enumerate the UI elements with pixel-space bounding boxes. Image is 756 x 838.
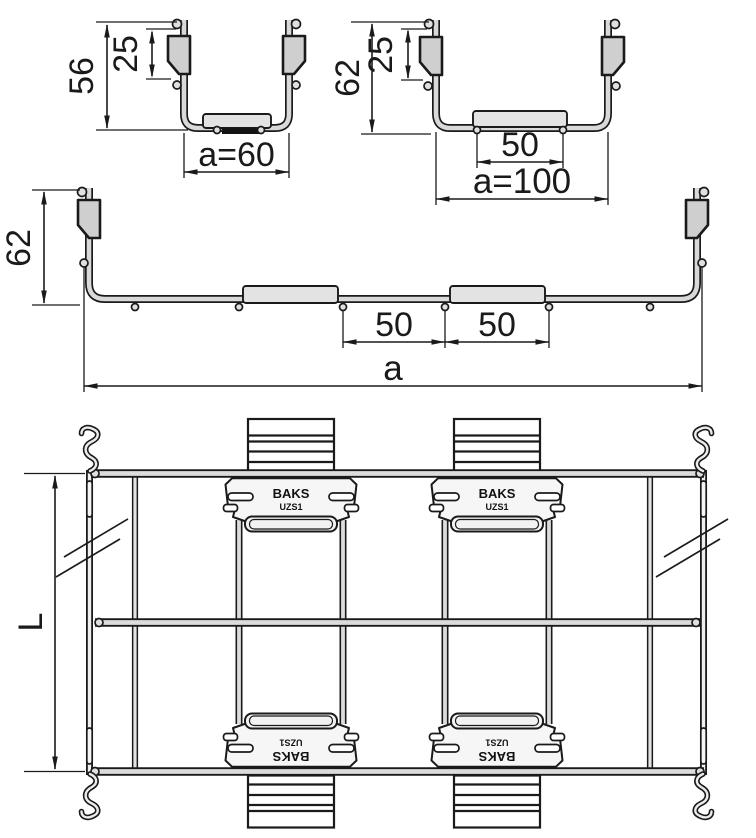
striped-connector-block — [248, 419, 334, 471]
corner-pin — [701, 481, 706, 517]
dim-label-rung-50: 50 — [501, 126, 539, 164]
splice-rung — [450, 286, 545, 303]
side-clip — [420, 37, 442, 75]
cross-section-a100: 62 25 50 a=100 — [329, 20, 624, 206]
connector-model: UZS1 — [485, 502, 508, 512]
connector-brand: BAKS — [273, 486, 310, 501]
s-hook-bottom-right — [695, 774, 711, 817]
connector-model: UZS1 — [279, 502, 302, 512]
break-mark — [656, 539, 720, 577]
cross-section-a60: 56 25 a=60 — [63, 20, 305, 179]
corner-pin — [87, 728, 92, 764]
dim-label-height-56: 56 — [63, 57, 101, 95]
dim-label-pitch-50-right: 50 — [478, 306, 516, 344]
dim-label-width-a: a — [383, 349, 403, 388]
bottom-rung — [473, 111, 567, 127]
splice-rung — [243, 286, 338, 303]
dim-label-clip-25: 25 — [362, 36, 400, 74]
cross-section-a: 62 50 50 a — [0, 188, 709, 393]
side-clip — [602, 37, 624, 75]
wire-hook-end — [292, 20, 301, 29]
connector-model: UZS1 — [279, 738, 302, 748]
s-hook-bottom-left — [82, 774, 98, 817]
connector-brand: BAKS — [478, 749, 515, 764]
striped-connector-block — [248, 776, 334, 828]
striped-connector-block — [454, 419, 540, 471]
weld-bar — [222, 129, 262, 135]
s-hook-top-left — [82, 428, 98, 471]
dim-label-height-62: 62 — [0, 229, 38, 267]
side-clip — [686, 200, 708, 238]
wire-hook-end — [173, 20, 182, 29]
connector-model: UZS1 — [485, 738, 508, 748]
side-clip — [283, 36, 305, 74]
corner-pin — [87, 481, 92, 517]
dim-label-clip-25: 25 — [107, 35, 145, 73]
connector-brand: BAKS — [479, 486, 516, 501]
corner-pin — [701, 728, 706, 764]
break-mark — [64, 519, 128, 557]
striped-connector-block — [454, 776, 540, 828]
dim-label-pitch-50-left: 50 — [375, 306, 413, 344]
dim-label-width-a60: a=60 — [198, 136, 275, 174]
side-clip — [78, 200, 100, 238]
s-hook-top-right — [695, 428, 711, 471]
break-mark — [664, 519, 728, 557]
side-clip — [168, 36, 190, 74]
cable-tray-technical-drawing: 56 25 a=60 62 — [0, 0, 756, 838]
dim-label-length-L: L — [12, 613, 50, 632]
plan-view: BAKS UZS1 BAKS UZS1 BAKS UZS1 BAKS UZS1 … — [12, 419, 728, 828]
drawing-canvas: 56 25 a=60 62 — [0, 0, 756, 838]
connector-brand: BAKS — [272, 749, 309, 764]
dim-label-width-a100: a=100 — [473, 162, 571, 201]
